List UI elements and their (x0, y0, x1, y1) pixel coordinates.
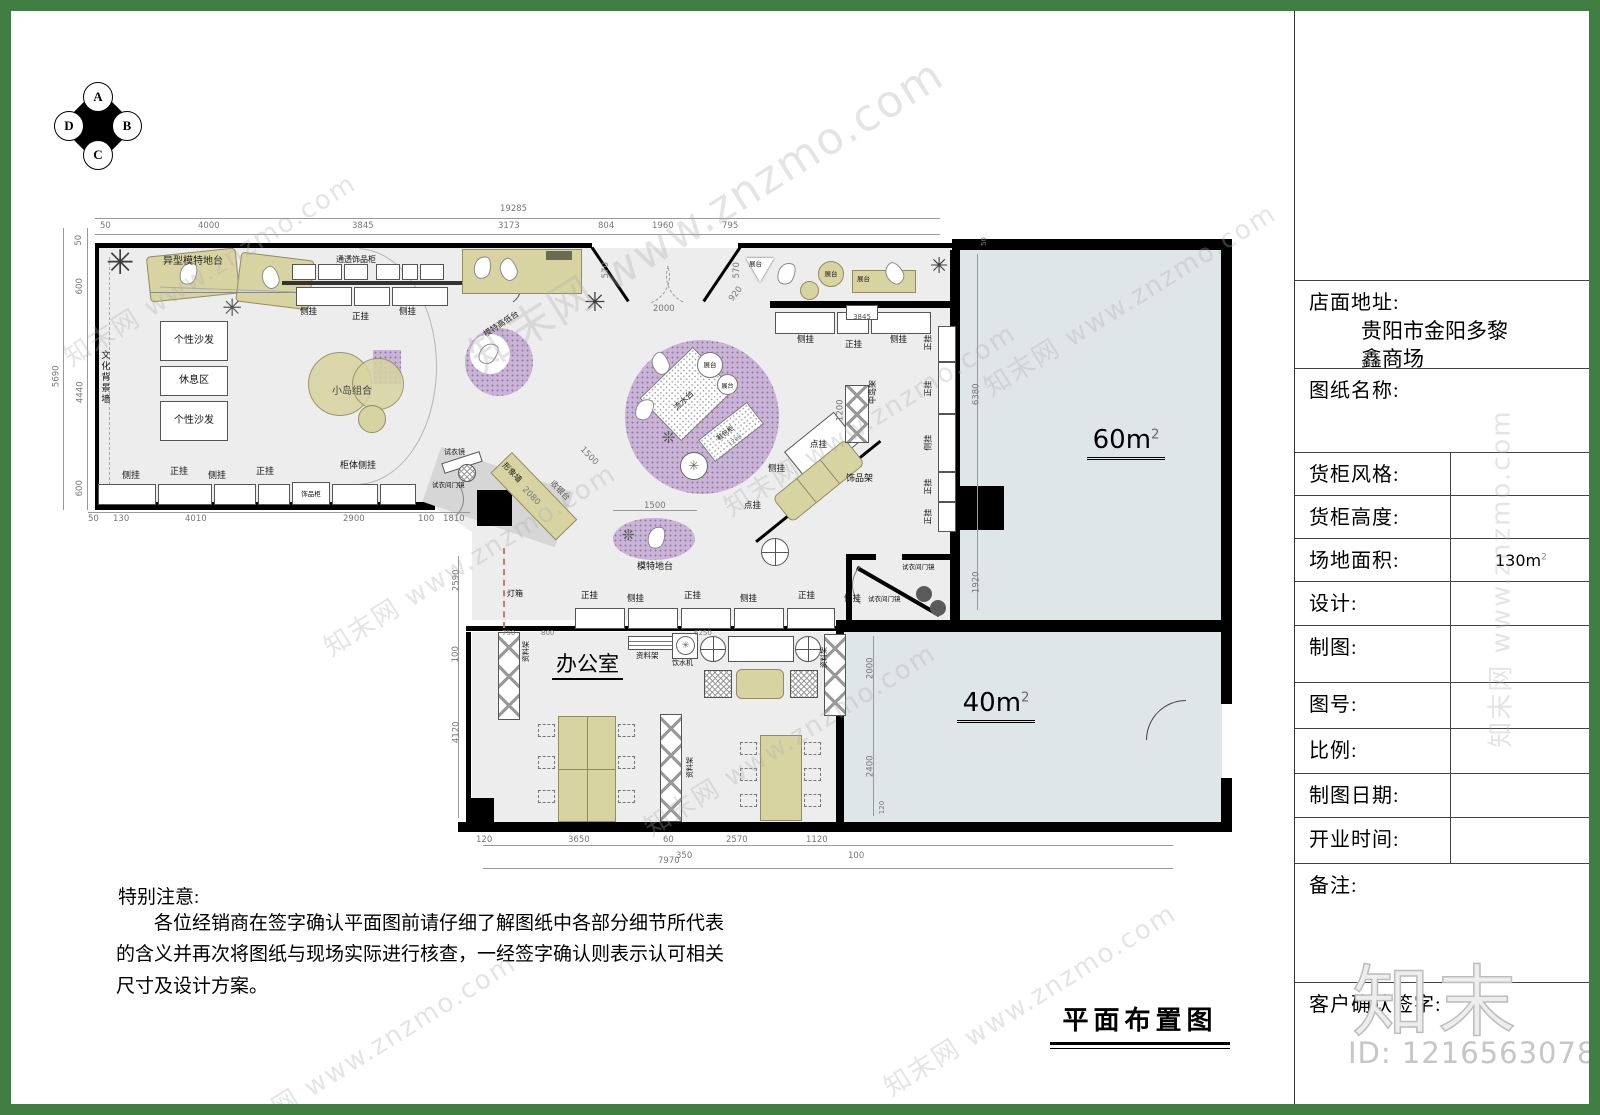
dimension: 2590 (453, 569, 462, 591)
display-stand-label: 展台 (704, 361, 717, 369)
address-value: 贵阳市金阳多黎鑫商场 (1361, 317, 1509, 374)
dimension: 50 (100, 222, 111, 231)
title-block-divider (1450, 774, 1451, 818)
water-dispenser-icon (676, 636, 695, 655)
hang-front-label: 正挂 (923, 335, 932, 351)
title-block-row-site-area: 场地面积: 130m2 (1295, 538, 1590, 582)
opening-label: 开业时间: (1309, 827, 1400, 853)
zigzag-shelf (150, 292, 305, 293)
fixture-unit (158, 484, 212, 505)
hang-front-label: 正挂 (581, 592, 598, 602)
fixture-unit (332, 484, 378, 505)
fixture-unit (354, 287, 390, 306)
room-60-label: 60m2 (1078, 425, 1174, 455)
dimension: 60 (663, 836, 674, 845)
dimension: 600 (76, 278, 85, 294)
scale-label: 比例: (1309, 738, 1358, 764)
plant-icon (622, 526, 635, 544)
dimension: 1200 (837, 399, 846, 421)
office-title-text: 办公室 (552, 652, 623, 680)
dimension-line (63, 228, 64, 510)
decor-star-icon (106, 246, 135, 280)
sofa-box: 个性沙发 (160, 401, 228, 441)
material-rack-label: 资料架 (522, 641, 530, 662)
title-block-row-design: 设计: (1295, 581, 1590, 626)
dimension: 4000 (198, 222, 220, 231)
title-block-row-drafting: 制图: (1295, 625, 1590, 683)
office-chair-pad (790, 670, 818, 698)
title-block-row-scale: 比例: (1295, 728, 1590, 774)
jewelry-rack-label: 饰品架 (846, 474, 873, 484)
hang-front-label: 正挂 (923, 509, 932, 525)
hang-front-label: 正挂 (352, 313, 369, 323)
jewelry-cabinet: 饰品柜 (292, 482, 330, 505)
fixture-unit (871, 312, 931, 334)
drawing-title-text: 平面布置图 (1050, 1000, 1230, 1037)
fixture-unit (787, 608, 835, 629)
dimension: 2900 (343, 515, 365, 524)
dimension: 2570 (726, 836, 748, 845)
fitting-lock-icon (458, 464, 476, 482)
dimension: 3845 (352, 222, 374, 231)
office-chair (740, 794, 757, 807)
cabinet-style-label: 货柜风格: (1309, 462, 1400, 488)
display-stand-label: 展台 (825, 270, 838, 278)
wall (466, 632, 471, 802)
site-area-number: 130m (1495, 551, 1541, 570)
room-40-sup: 2 (1021, 690, 1029, 705)
material-rack (660, 714, 682, 822)
dimension: 795 (722, 222, 738, 231)
dimension: 4440 (77, 381, 86, 403)
office-chair (804, 742, 821, 755)
dimension: 804 (598, 222, 614, 231)
hang-point-label: 点挂 (744, 502, 761, 512)
special-model-stage-label: 异型模特地台 (163, 256, 223, 268)
display-stand-label: 展台 (749, 261, 762, 268)
dimension-line (483, 845, 1173, 846)
office-chair (740, 768, 757, 781)
material-rack (628, 636, 676, 650)
decor-star-icon (584, 290, 606, 316)
wall (952, 239, 1232, 250)
fixture-unit (344, 264, 368, 280)
hang-side-label: 侧挂 (844, 595, 861, 605)
dimension-line (95, 218, 940, 219)
fixture-unit (292, 264, 316, 280)
site-area-sup: 2 (1541, 553, 1547, 563)
address-label: 店面地址: (1309, 290, 1400, 316)
title-block-divider (1450, 818, 1451, 864)
display-stand-round (800, 281, 819, 300)
dimension-line (88, 512, 470, 513)
display-cabinet-label: 通透饰品柜 (336, 255, 376, 264)
island-combo-label: 小岛组合 (332, 386, 372, 398)
title-block-row-drawing-name: 图纸名称: (1295, 368, 1590, 453)
fixture-unit (98, 484, 156, 505)
fixture-unit (575, 608, 625, 629)
hang-side-label: 侧挂 (797, 336, 814, 346)
dimension: 6380 (973, 383, 982, 405)
hang-front-label: 正挂 (684, 592, 701, 602)
dimension: 570 (733, 262, 742, 278)
room-60-sup: 2 (1151, 427, 1159, 442)
fixture-unit (296, 287, 352, 306)
room-60-value: 60m (1093, 425, 1151, 455)
compass: A B C D (50, 78, 146, 174)
office-chair (538, 790, 555, 803)
dimension: 100 (848, 852, 864, 861)
title-block-row-date: 制图日期: (1295, 773, 1590, 818)
display-stand-round: 展台 (697, 352, 723, 378)
remarks-label: 备注: (1309, 873, 1358, 899)
culture-wall-label: 文化背景墙 (99, 350, 109, 405)
dimension-line (483, 868, 1173, 869)
dimension: 3173 (498, 222, 520, 231)
room-60-text: 60m2 (1087, 425, 1166, 460)
dimension: 6250 (694, 630, 712, 637)
hang-front-label: 正挂 (170, 467, 188, 477)
title-block-row-address: 店面地址: 贵阳市金阳多黎鑫商场 (1295, 280, 1590, 369)
fitting-door-mirror-label: 试衣间门镜 (868, 596, 904, 603)
sofa-label: 个性沙发 (174, 415, 214, 426)
dimension: 50 (88, 515, 99, 524)
floor-plan-sheet: A B C D 试衣间门镜 试衣间门镜 异型模特地台 (0, 0, 1600, 1115)
design-label: 设计: (1309, 591, 1358, 617)
decor-star-icon (930, 256, 948, 278)
compass-letter-d: D (54, 111, 84, 141)
jewelry-cabinet-label: 饰品柜 (301, 490, 321, 498)
room-40-label: 40m2 (948, 688, 1044, 718)
date-label: 制图日期: (1309, 783, 1400, 809)
wall (846, 556, 852, 620)
sofa-label: 个性沙发 (174, 335, 214, 346)
fitting-door-mirror-label: 试衣间门镜 (902, 564, 938, 571)
drawing-title-rule (1050, 1048, 1230, 1049)
fixture-unit (938, 326, 956, 362)
dimension: 2000 (653, 305, 675, 314)
dimension: 50 (981, 237, 988, 246)
material-rack-label: 资料架 (636, 652, 659, 661)
column (958, 486, 1004, 530)
cabinet-height-label: 货柜高度: (1309, 505, 1400, 531)
dimension: 1960 (652, 222, 674, 231)
hang-side-label: 侧挂 (890, 336, 907, 346)
fixture-unit (628, 608, 678, 629)
cabinet-side-hang-label: 柜体侧挂 (340, 461, 376, 471)
dimension: 7970 (658, 857, 680, 866)
compass-letter-b: B (112, 111, 142, 141)
office-cabinet (728, 636, 794, 662)
room-40-text: 40m2 (957, 688, 1036, 723)
title-block-row-drawing-no: 图号: (1295, 682, 1590, 729)
island-rack-label: 中岛架 (868, 380, 877, 404)
fixture-unit (318, 264, 342, 280)
fixture-unit (681, 608, 731, 629)
dimension: 100 (418, 515, 434, 524)
title-block-divider (1450, 453, 1451, 496)
fixture-unit (775, 312, 835, 334)
plant-icon (662, 428, 675, 447)
fixture-unit (938, 362, 956, 414)
dimension: 1810 (443, 515, 465, 524)
title-block-divider (1450, 582, 1451, 626)
material-rack-label: 资料架 (686, 757, 694, 778)
watermark: 知末网 www.znzmo.com (876, 893, 1182, 1104)
column (477, 490, 512, 526)
fitting-door-mirror-label: 试衣间门镜 (432, 482, 468, 489)
dimension-line (613, 510, 697, 511)
title-block-row-cabinet-style: 货柜风格: (1295, 452, 1590, 496)
office-chair (618, 790, 635, 803)
round-table-icon (761, 538, 789, 566)
rest-area-box: 休息区 (160, 366, 228, 396)
drawing-name-label: 图纸名称: (1309, 378, 1400, 404)
material-rack (498, 632, 520, 720)
hang-front-label: 正挂 (923, 381, 932, 397)
title-block-row-opening: 开业时间: (1295, 817, 1590, 864)
hang-front-label: 正挂 (798, 592, 815, 602)
dimension: 130 (113, 515, 129, 524)
wall (1221, 632, 1232, 704)
compass-letter-c: C (83, 140, 113, 170)
title-block-divider (1450, 729, 1451, 774)
dimension-line (87, 228, 88, 510)
dimension-line (458, 556, 459, 818)
dimension: 120 (476, 836, 492, 845)
dimension: 2400 (867, 755, 876, 777)
hang-side-label: 侧挂 (740, 595, 757, 605)
hang-side-label: 侧挂 (768, 465, 785, 475)
hang-front-label: 正挂 (845, 341, 862, 351)
wall (902, 554, 952, 560)
round-table-icon (700, 636, 726, 662)
title-block-divider (1450, 683, 1451, 729)
hang-side-label: 侧挂 (122, 471, 140, 481)
office-title: 办公室 (552, 648, 623, 678)
office-chair (740, 742, 757, 755)
hang-side-label: 侧挂 (399, 308, 416, 318)
fixture-unit (938, 414, 956, 472)
island-rack (845, 385, 869, 443)
sofa-box: 个性沙发 (160, 321, 228, 361)
wall (1221, 239, 1232, 632)
office-desk (760, 735, 802, 821)
drawing-title-rule (1050, 1042, 1230, 1045)
watermark-id: ID: 1216563078 (1348, 1036, 1596, 1070)
dimension: 570 (602, 262, 611, 278)
fitting-stool (930, 600, 946, 616)
wall (458, 822, 1232, 832)
site-area-value: 130m2 (1495, 551, 1547, 570)
fixture-unit (420, 264, 444, 280)
office-chair (618, 756, 635, 769)
column (466, 798, 494, 824)
office-chair (618, 724, 635, 737)
office-desk (558, 716, 616, 822)
hang-point-label: 点挂 (810, 441, 827, 451)
hang-side-label: 侧挂 (627, 595, 644, 605)
compass-letter-a: A (83, 82, 113, 112)
display-stand-table: 展台 (852, 270, 916, 293)
fitting-stool (916, 586, 932, 602)
office-table (736, 669, 784, 699)
office-chair (538, 724, 555, 737)
hang-side-label: 侧挂 (300, 308, 317, 318)
display-stand-label: 展台 (721, 383, 733, 390)
fitting-mirror-label: 试衣镜 (444, 448, 465, 456)
hang-side-label: 侧挂 (208, 471, 226, 481)
dimension: 2000 (867, 657, 876, 679)
fixture-unit (734, 608, 784, 629)
display-stand-round: 展台 (717, 374, 738, 395)
notes-body: 各位经销商在签字确认平面图前请仔细了解图纸中各部分细节所代表的含义并再次将图纸与… (116, 908, 730, 1002)
drafting-label: 制图: (1309, 635, 1358, 661)
title-block-divider (1450, 539, 1451, 582)
dimension: 3650 (568, 836, 590, 845)
window-display-sign (546, 251, 572, 260)
fixture-unit (376, 264, 400, 280)
hang-front-label: 正挂 (256, 467, 274, 477)
fixture-unit (938, 472, 956, 502)
wall (95, 243, 592, 248)
dimension: 120 (879, 801, 886, 814)
model-stage-label: 模特地台 (637, 562, 673, 572)
light-box-strip (503, 548, 507, 628)
rest-area-label: 休息区 (179, 375, 209, 386)
fixture-unit (380, 484, 416, 505)
office-chair-pad (704, 670, 732, 698)
hang-front-label: 正挂 (923, 479, 932, 495)
wall (836, 620, 1232, 632)
fixture-unit (392, 287, 448, 306)
material-rack-label: 资料架 (820, 647, 828, 668)
dimension: 1920 (973, 571, 982, 593)
dimension-line (977, 254, 978, 610)
site-area-label: 场地面积: (1309, 548, 1400, 574)
decor-star-icon (222, 296, 242, 320)
room-40-value: 40m (963, 688, 1021, 718)
dimension: 800 (541, 630, 554, 637)
dimension: 50 (75, 235, 84, 246)
title-block-row-cabinet-height: 货柜高度: (1295, 495, 1590, 539)
dimension: 600 (76, 480, 85, 496)
fixture-unit (214, 484, 256, 505)
dimension-box: 3845 (846, 305, 878, 320)
fixture-unit (258, 484, 290, 505)
office-chair (538, 756, 555, 769)
office-chair (804, 768, 821, 781)
water-dispenser-label: 饮水机 (672, 659, 693, 667)
dimension-line (95, 234, 940, 235)
drawing-no-label: 图号: (1309, 692, 1358, 718)
dimension: 19285 (500, 205, 527, 214)
notes-title: 特别注意: (118, 882, 199, 909)
dimension: 5690 (53, 365, 62, 387)
drawing-title: 平面布置图 (1050, 1000, 1230, 1049)
dimension: 4120 (453, 721, 462, 743)
hang-side-label: 侧挂 (923, 435, 932, 451)
fixture-unit (938, 502, 956, 532)
dimension: 3845 (853, 313, 871, 321)
round-table-icon (795, 636, 821, 662)
dimension: 4010 (185, 515, 207, 524)
title-block-divider (1450, 626, 1451, 683)
fan-stool-icon (680, 452, 708, 480)
fixture-unit (402, 264, 418, 280)
dimension: 1120 (806, 836, 828, 845)
island-combo-round (358, 405, 386, 433)
dimension: 750 (502, 630, 515, 637)
island-combo-round (352, 358, 404, 410)
display-stand-round: 展台 (818, 261, 844, 287)
title-block-divider (1450, 496, 1451, 539)
display-stand-label: 展台 (857, 276, 870, 283)
dimension: 100 (452, 646, 461, 662)
wall (738, 243, 960, 248)
light-box-label: 灯箱 (507, 589, 523, 598)
office-chair (804, 794, 821, 807)
